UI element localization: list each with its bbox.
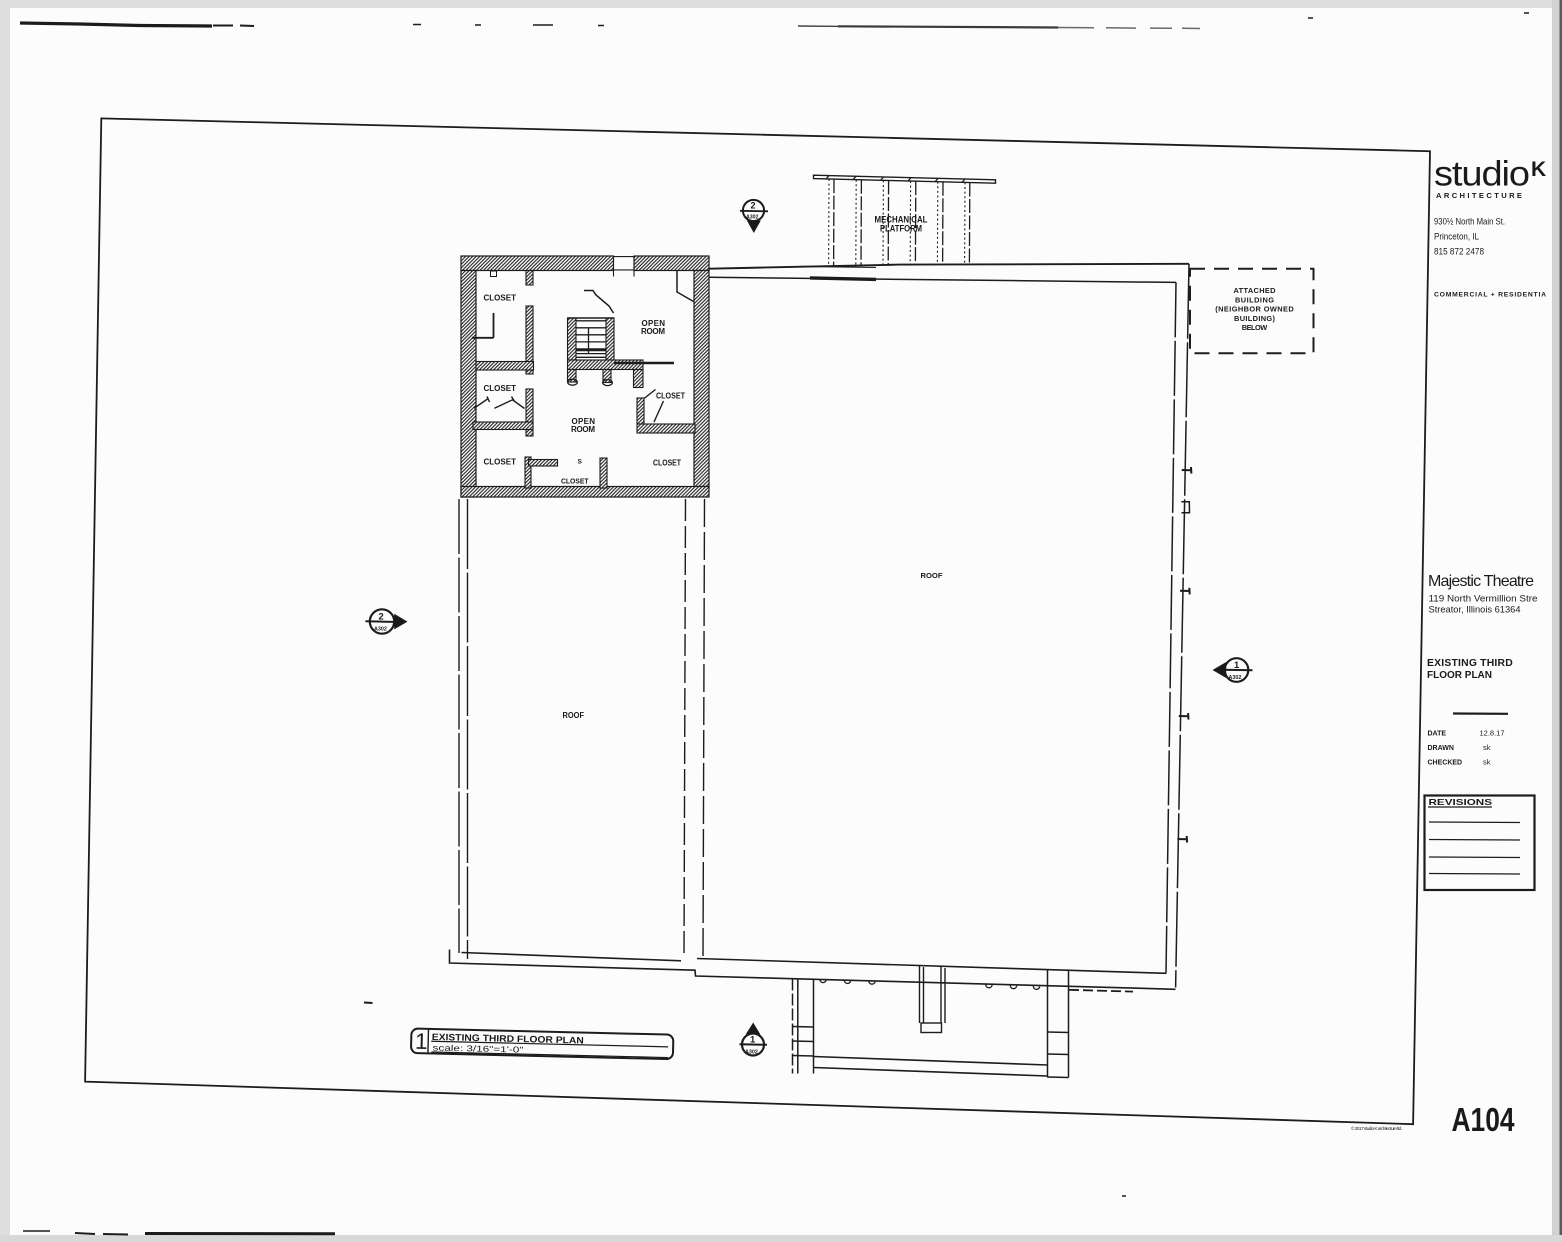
svg-text:1: 1 (750, 1034, 755, 1045)
svg-text:ROOF: ROOF (563, 711, 585, 720)
svg-text:DRAWN: DRAWN (1428, 745, 1454, 752)
svg-text:A302: A302 (746, 215, 759, 221)
svg-text:BUILDING): BUILDING) (1234, 314, 1276, 323)
svg-text:FLOOR PLAN: FLOOR PLAN (1427, 670, 1492, 681)
svg-text:CLOSET: CLOSET (484, 294, 517, 303)
svg-text:ROOM: ROOM (571, 425, 595, 434)
svg-text:CLOSET: CLOSET (561, 477, 589, 486)
svg-text:K: K (1531, 158, 1546, 181)
svg-text:2: 2 (379, 611, 384, 622)
svg-text:CLOSET: CLOSET (653, 459, 681, 468)
svg-text:EXISTING THIRD: EXISTING THIRD (1427, 658, 1513, 669)
svg-text:Streator, Illinois 61364: Streator, Illinois 61364 (1429, 605, 1521, 615)
svg-text:815 872 2478: 815 872 2478 (1434, 247, 1484, 258)
svg-text:119 North Vermillion Stre: 119 North Vermillion Stre (1429, 594, 1538, 604)
svg-text:DATE: DATE (1428, 731, 1447, 738)
svg-text:Majestic Theatre: Majestic Theatre (1428, 573, 1534, 590)
svg-text:A302: A302 (374, 627, 387, 633)
svg-text:ROOF: ROOF (921, 571, 943, 580)
svg-text:© 2017 studio K architecture l: © 2017 studio K architecture ltd. (1351, 1125, 1402, 1131)
svg-text:PLATFORM: PLATFORM (880, 223, 922, 233)
svg-text:ROOM: ROOM (641, 327, 665, 336)
svg-text:sk: sk (1483, 758, 1491, 767)
svg-text:1: 1 (415, 1029, 428, 1054)
svg-text:2: 2 (751, 201, 756, 211)
svg-text:A302: A302 (745, 1050, 758, 1056)
svg-text:12.8.17: 12.8.17 (1480, 729, 1505, 738)
svg-text:ARCHITECTURE: ARCHITECTURE (1436, 191, 1525, 200)
svg-text:Princeton, IL: Princeton, IL (1434, 232, 1479, 243)
svg-text:CLOSET: CLOSET (656, 392, 685, 401)
svg-text:CHECKED: CHECKED (1428, 760, 1463, 767)
svg-text:(NEIGHBOR OWNED: (NEIGHBOR OWNED (1215, 305, 1294, 314)
svg-text:COMMERCIAL + RESIDENTIA: COMMERCIAL + RESIDENTIA (1434, 292, 1546, 299)
svg-text:930½ North Main St.: 930½ North Main St. (1434, 217, 1505, 228)
svg-text:CLOSET: CLOSET (484, 458, 517, 467)
svg-text:studio: studio (1434, 154, 1529, 194)
svg-text:REVISIONS: REVISIONS (1429, 797, 1493, 807)
svg-text:1: 1 (1234, 659, 1239, 670)
svg-text:S: S (578, 459, 583, 466)
svg-text:sk: sk (1483, 743, 1491, 752)
svg-text:BELOW: BELOW (1242, 323, 1268, 332)
svg-text:A104: A104 (1452, 1101, 1516, 1138)
svg-text:A302: A302 (1229, 675, 1242, 681)
svg-text:BUILDING: BUILDING (1235, 295, 1274, 304)
svg-text:ATTACHED: ATTACHED (1234, 286, 1277, 295)
svg-text:CLOSET: CLOSET (484, 384, 517, 393)
